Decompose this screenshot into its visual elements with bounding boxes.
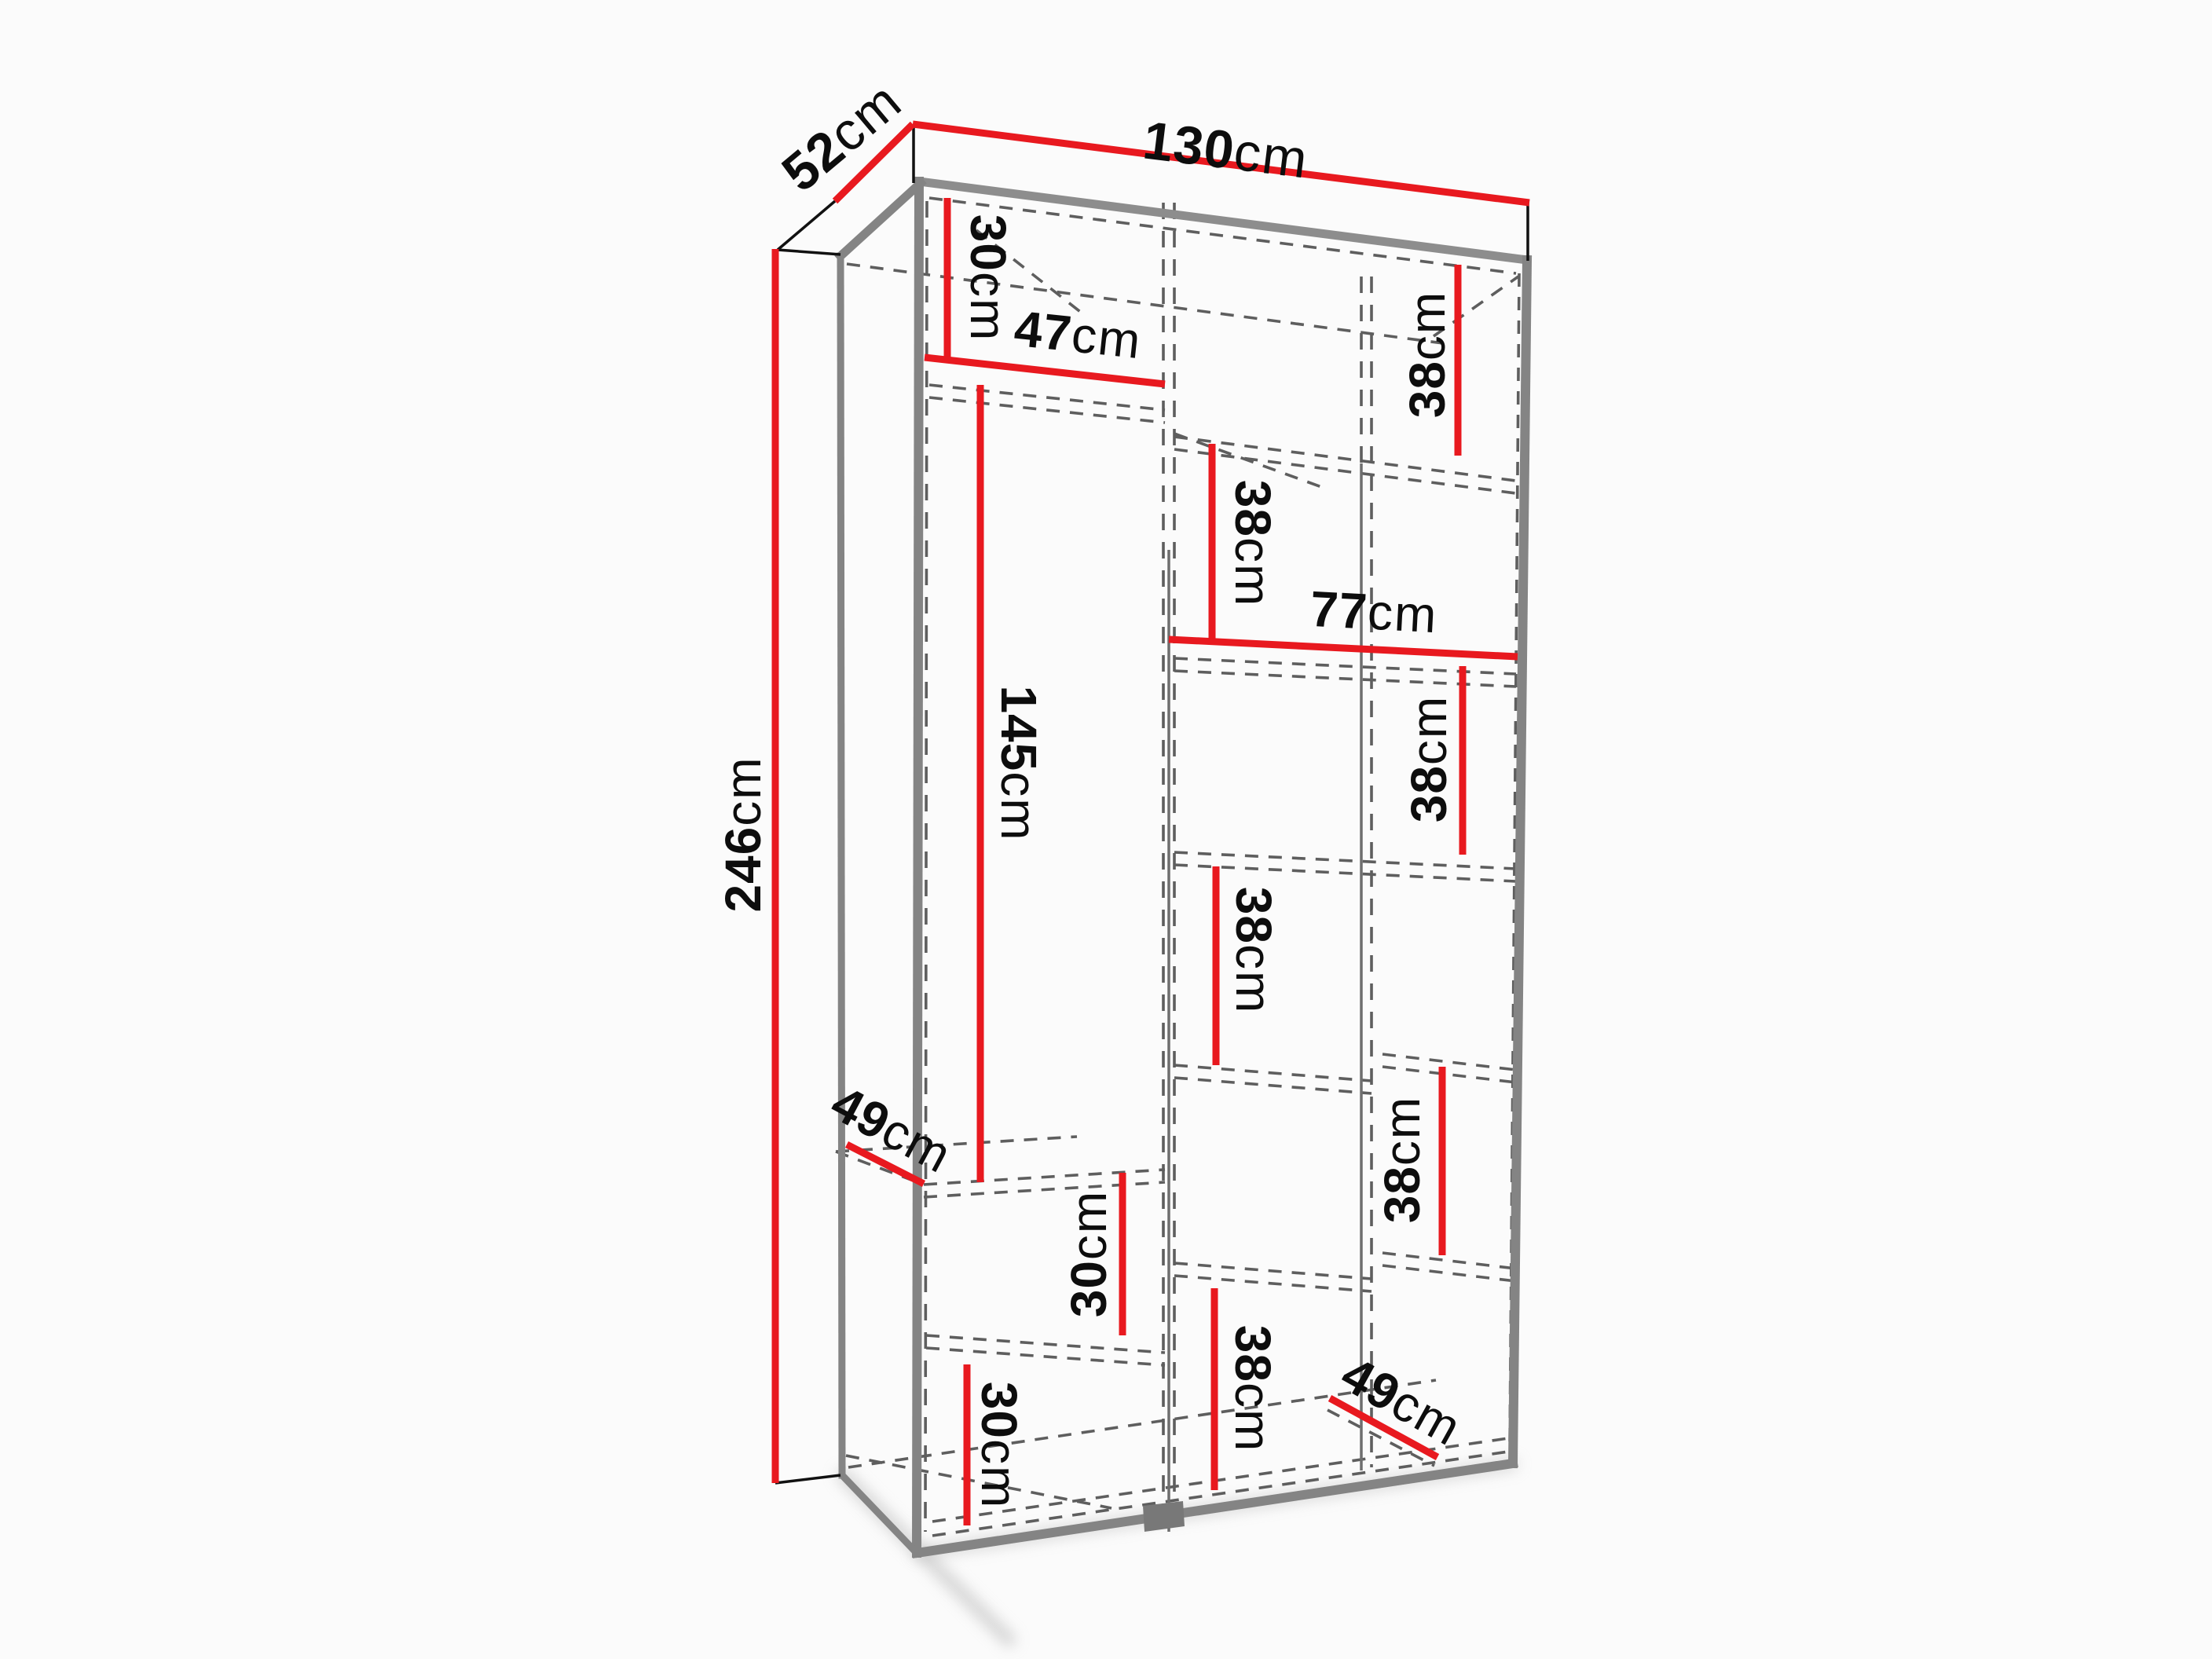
dimension-labels-layer: 52cm130cm246cm30cm47cm38cm38cm77cm38cm14… [715,71,1471,1510]
back-top-edge [847,264,1443,343]
inner-wall-left [925,201,927,1532]
dimension-label-center-38cm: 38cm [1225,887,1282,1015]
dimension-label-width-77cm: 77cm [1309,580,1439,643]
dimension-label-bottom-left-30cm: 30cm [971,1382,1027,1510]
shelf-r3-bottom [1382,1265,1516,1281]
plinth-foot [1143,1501,1185,1532]
dimension-label-bottom-mid-38cm: 38cm [1225,1325,1281,1453]
edge-depth-bottom [842,1475,917,1553]
ext-52-lower [778,201,835,250]
edge-depth-top [840,183,921,256]
dimension-label-right-lower-38cm: 38cm [1374,1096,1430,1224]
shelf-s5-top [1174,1263,1372,1279]
edge-right [1513,260,1527,1463]
shelf-49l-top [924,1170,1165,1185]
shelf-49l-bottom [924,1182,1165,1197]
shelf-47-top [929,385,1165,410]
diagram-svg: 52cm130cm246cm30cm47cm38cm38cm77cm38cm14… [0,0,2212,1659]
dim-line-77 [1169,639,1518,657]
shelf-s1-top [1174,437,1516,481]
dimension-label-top-left-30cm: 30cm [960,214,1016,342]
edge-left [917,181,919,1553]
edge-back-left [840,256,842,1475]
ext-246-bottom [775,1475,840,1483]
dimension-label-depth-52cm: 52cm [771,71,913,203]
dimension-label-height-246cm: 246cm [715,756,771,912]
shelf-s4-top [1174,1065,1372,1081]
dimension-label-right-mid-38cm: 38cm [1401,695,1457,823]
dimension-label-width-130cm: 130cm [1140,110,1312,189]
shelf-r3-top [1382,1253,1516,1269]
dimension-label-mid-upper-38cm: 38cm [1225,480,1281,608]
shelf-s5-bottom [1174,1276,1372,1291]
shelf-r2-bottom [1382,1067,1516,1082]
dimension-label-hanging-145cm: 145cm [991,685,1047,841]
wardrobe-dimension-diagram: 52cm130cm246cm30cm47cm38cm38cm77cm38cm14… [0,0,2212,1659]
shelf-r2-top [1382,1054,1516,1070]
shelf-47-bottom [929,397,1165,423]
ext-246-top [778,250,840,255]
dimension-label-shelf-47cm: 47cm [1012,300,1144,370]
dimension-label-top-right-38cm: 38cm [1399,291,1456,419]
shelf-left3-bottom [926,1348,1165,1365]
shelf-s4-bottom [1174,1078,1372,1093]
dimension-label-mid-left-30cm: 30cm [1060,1190,1117,1318]
